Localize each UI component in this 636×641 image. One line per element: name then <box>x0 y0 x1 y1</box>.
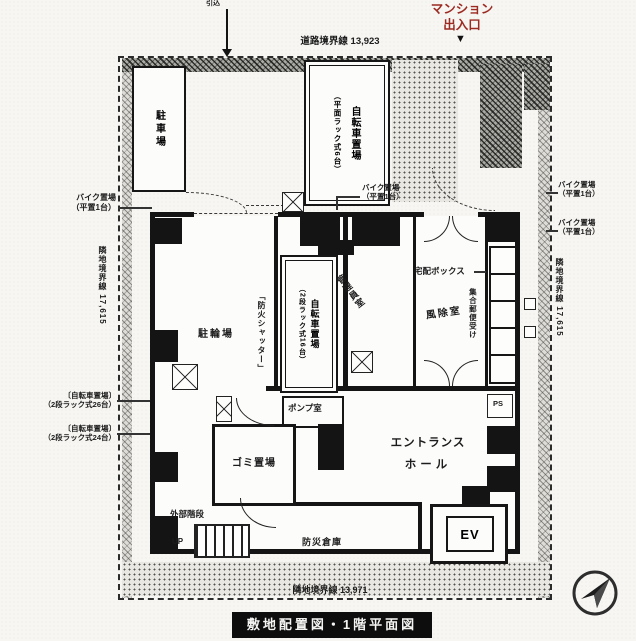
equipment-box-yard <box>172 364 198 390</box>
bike-parking-label-center: バイク置場 （平置1台） <box>362 183 438 202</box>
entrance-hall-label-2: ホール <box>386 458 470 472</box>
bicycle-two-tier-line2: （2段ラック式16台） <box>297 285 307 364</box>
bike-right1-line2: （平置1台） <box>558 189 634 198</box>
opening-dashed-top <box>194 213 278 214</box>
equipment-box-garbage <box>216 396 232 422</box>
column <box>487 466 518 492</box>
bicycle-rack-callout-1: 〔自転車置場〕 （2段ラック式26台） <box>18 391 116 410</box>
bike-left-line1: バイク置場 <box>44 193 116 203</box>
column <box>487 214 518 242</box>
bicycle-rack-callout-2: 〔自転車置場〕 （2段ラック式24台） <box>18 424 116 443</box>
mansion-entrance-line2: 出入口 <box>412 18 512 34</box>
car-parking-area: 駐車場 <box>132 66 186 192</box>
column <box>152 330 178 362</box>
wall-windbreak-left <box>413 216 416 388</box>
wall-top-1 <box>150 212 194 217</box>
wall-fire-shutter <box>274 216 278 388</box>
utility-box-right-1 <box>524 298 536 310</box>
pipe-space-label: PS <box>493 399 503 408</box>
equipment-box-manager <box>351 351 373 373</box>
bike-parking-label-right-2: バイク置場 （平置1台） <box>558 218 634 237</box>
delivery-box-label: 宅配ボックス <box>414 266 465 277</box>
rack-callout2-line2: （2段ラック式24台） <box>18 433 116 442</box>
equipment-box-top <box>282 192 304 212</box>
mailbox-cell-divider <box>491 354 515 356</box>
wall-left <box>150 212 155 554</box>
rack-callout1-leader <box>117 400 151 402</box>
bicycle-flat-rack-line2: （平面ラック式6台） <box>332 92 343 174</box>
rack-callout2-leader <box>117 433 151 435</box>
fire-shutter-label: 「防火シャッター」 <box>256 292 266 390</box>
pump-room-label: ポンプ室 <box>288 403 322 414</box>
bike-right1-line1: バイク置場 <box>558 180 634 189</box>
bicycle-two-tier-inner: （2段ラック式16台） 自転車置場 <box>285 260 333 388</box>
bike-parking-label-left: バイク置場 （平置1台） <box>44 193 116 213</box>
rack-callout1-line2: （2段ラック式26台） <box>18 400 116 409</box>
car-parking-label: 駐車場 <box>152 110 167 149</box>
wall-corridor-2 <box>277 502 422 506</box>
disaster-storage-label: 防災倉庫 <box>282 537 362 548</box>
column <box>300 216 340 246</box>
column <box>352 216 400 246</box>
garbage-room-label: ゴミ置場 <box>212 458 296 471</box>
mansion-entrance-sign: マンション 出入口 <box>412 2 512 33</box>
mailbox-stack <box>489 246 517 384</box>
column <box>487 426 518 454</box>
compass-svg <box>570 568 620 618</box>
wall-ev-top <box>462 486 490 504</box>
bike-center-line2: （平置1台） <box>362 192 438 201</box>
neighbor-boundary-right-label: 隣地境界線 17,615 <box>554 258 564 408</box>
bicycle-flat-rack-line1: 自転車置場 <box>347 106 362 161</box>
neighbor-boundary-left-label: 隣地境界線 17,615 <box>97 246 107 391</box>
bicycle-two-tier-line1: 自転車置場 <box>309 299 322 349</box>
utility-box-right-2 <box>524 326 536 338</box>
external-staircase <box>194 524 250 558</box>
bike-right2-line2: （平置1台） <box>558 227 634 236</box>
north-compass-icon <box>570 568 620 618</box>
mailbox-cell-divider <box>491 273 515 275</box>
site-floor-plan: 引込 道路境界線 13,923 マンション 出入口 ▼ 隣地境界線 17,615… <box>0 0 636 641</box>
bike-parking-label-right-1: バイク置場 （平置1台） <box>558 180 634 199</box>
entrance-arrow-icon: ▼ <box>455 33 466 47</box>
shaft-block <box>318 424 344 470</box>
wall-corridor-3 <box>418 502 422 550</box>
bike-left-line2: （平置1台） <box>44 203 116 213</box>
bike-center-leader-tick <box>336 196 338 210</box>
mailboxes-label: 集合郵便受け <box>468 288 477 370</box>
bicycle-flat-rack-inner: （平面ラック式6台） 自転車置場 <box>309 65 385 201</box>
elevator-label: EV <box>460 527 479 542</box>
bike-center-leader-line <box>336 196 360 198</box>
external-stairs-label: 外部階段 <box>170 509 204 520</box>
neighbor-boundary-bottom-label: 隣地境界線 13,971 <box>270 585 390 596</box>
bike-center-line1: バイク置場 <box>362 183 438 192</box>
bike-right2-line1: バイク置場 <box>558 218 634 227</box>
road-boundary-label: 道路境界線 13,923 <box>275 36 405 48</box>
elevator-car: EV <box>446 516 494 552</box>
rack-callout2-line1: 〔自転車置場〕 <box>18 424 116 433</box>
drawing-title: 敷地配置図・1階平面図 <box>232 612 432 638</box>
bike-yard-label: 駐輪場 <box>198 329 234 342</box>
delivery-box-leader <box>474 271 486 273</box>
service-drop-arrow-line <box>226 9 228 51</box>
column <box>152 452 178 482</box>
service-drop-arrowhead-icon <box>222 49 232 62</box>
bicycle-two-tier-rack-area: （2段ラック式16台） 自転車置場 <box>280 255 338 393</box>
bike-right2-leader-line <box>546 230 558 232</box>
mailbox-cell-divider <box>491 327 515 329</box>
service-drop-label: 引込 <box>206 0 220 9</box>
column <box>152 218 182 244</box>
rack-callout1-line1: 〔自転車置場〕 <box>18 391 116 400</box>
stairs-up-label: UP <box>172 537 183 547</box>
mansion-entrance-line1: マンション <box>412 2 512 18</box>
bike-right1-leader-line <box>546 192 558 194</box>
mailbox-cell-divider <box>491 300 515 302</box>
entrance-hall-label-1: エントランス <box>386 436 470 450</box>
bike-left-leader-line <box>118 207 152 209</box>
